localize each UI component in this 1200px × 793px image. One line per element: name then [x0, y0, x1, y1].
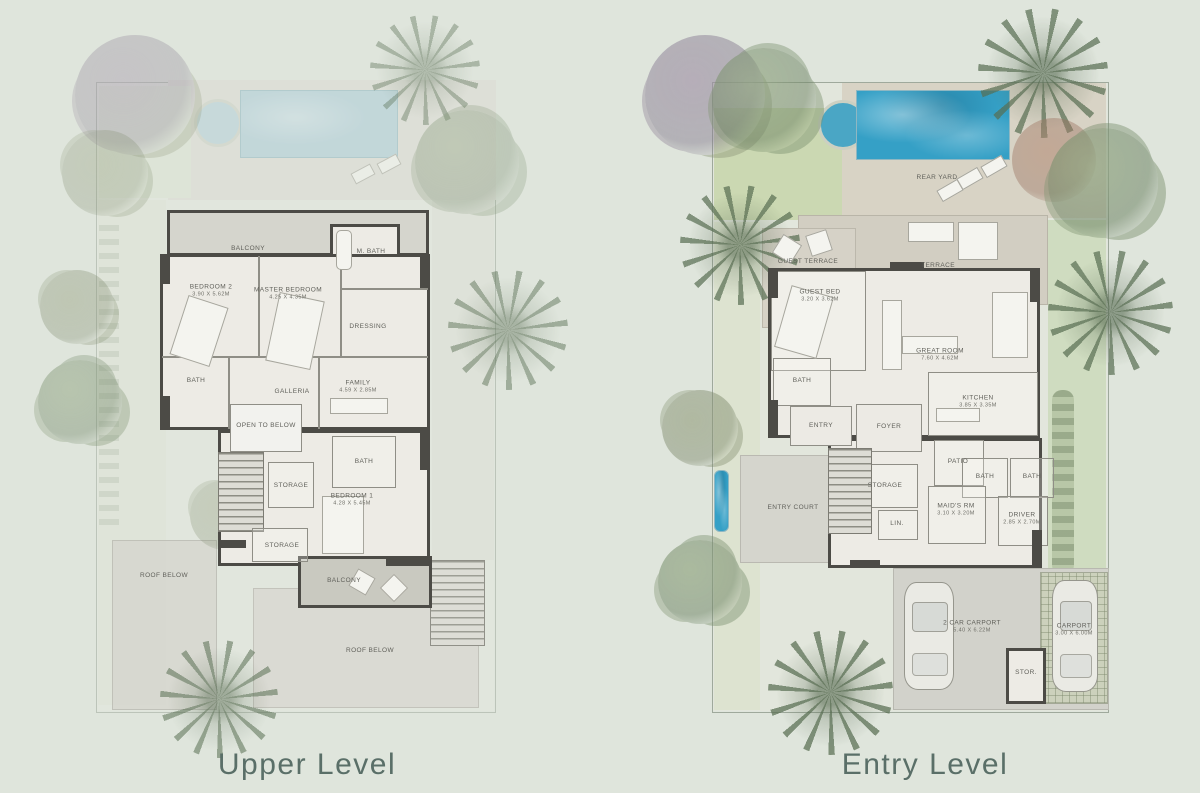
- upper-level-plan: BALCONY BEDROOM 23.90 X 5.62M MASTER BED…: [0, 0, 600, 740]
- storage2-room: [252, 528, 308, 562]
- tree: [62, 130, 148, 216]
- hedge-right: [1052, 390, 1074, 575]
- entry-level-plan: REAR YARD TERRACE GUEST TERRACE GUEST BE…: [600, 0, 1200, 740]
- dining-table: [992, 292, 1028, 358]
- wall-chunk: [1032, 530, 1042, 568]
- floorplan-sheet: BALCONY BEDROOM 23.90 X 5.62M MASTER BED…: [0, 0, 1200, 793]
- terrace-sofa: [958, 222, 998, 260]
- car: [1052, 580, 1098, 692]
- wall-chunk: [890, 262, 924, 270]
- palm-tree: [768, 630, 893, 755]
- tree: [662, 390, 738, 466]
- garden-steps: [430, 560, 485, 646]
- entry-level-title: Entry Level: [842, 748, 1009, 782]
- stairs: [828, 448, 872, 534]
- partition: [258, 256, 260, 356]
- wall-chunk: [850, 560, 880, 568]
- bed: [322, 496, 364, 554]
- upper-level-title: Upper Level: [218, 748, 396, 782]
- sofa: [882, 300, 902, 370]
- tree: [38, 360, 122, 444]
- car-rear-window: [912, 653, 948, 676]
- wall-chunk: [420, 430, 430, 470]
- wall-chunk: [386, 558, 432, 566]
- kitchen-island: [936, 408, 980, 422]
- linen-closet: [878, 510, 918, 540]
- storage1-room: [268, 462, 314, 508]
- kitchen-room: [928, 372, 1038, 436]
- terrace-sofa: [908, 222, 954, 242]
- open-to-below-area: [230, 404, 302, 452]
- tub: [336, 230, 352, 270]
- maids-room: [928, 486, 986, 544]
- car-rear-window: [1060, 654, 1093, 678]
- wall-chunk: [218, 540, 246, 548]
- wall-chunk: [768, 268, 778, 298]
- tree: [1048, 128, 1158, 238]
- palm-tree: [1048, 250, 1173, 375]
- foyer-room: [856, 404, 922, 452]
- sofa: [902, 336, 958, 354]
- car-windshield: [1060, 601, 1093, 632]
- entry-room: [790, 406, 852, 446]
- palm-tree: [370, 15, 480, 125]
- wall-chunk: [160, 254, 170, 284]
- car: [904, 582, 954, 690]
- wall-chunk: [1030, 268, 1040, 302]
- stairs: [218, 452, 264, 532]
- partition: [342, 288, 428, 290]
- partition: [340, 256, 342, 356]
- wall-chunk: [420, 254, 430, 288]
- court-water-feature: [714, 470, 729, 532]
- partition: [318, 357, 320, 429]
- wall-chunk: [768, 400, 778, 436]
- tree: [40, 270, 114, 344]
- bath1-room: [332, 436, 396, 488]
- bath2-room: [1010, 458, 1054, 498]
- car-windshield: [912, 602, 948, 632]
- tree: [658, 540, 742, 624]
- palm-tree: [160, 640, 278, 758]
- palm-tree: [448, 270, 568, 390]
- sofa: [330, 398, 388, 414]
- wall-chunk: [160, 396, 170, 428]
- stor-room: [1006, 648, 1046, 704]
- tree: [712, 48, 816, 152]
- tree: [415, 110, 519, 214]
- bath-guest-room: [773, 358, 831, 406]
